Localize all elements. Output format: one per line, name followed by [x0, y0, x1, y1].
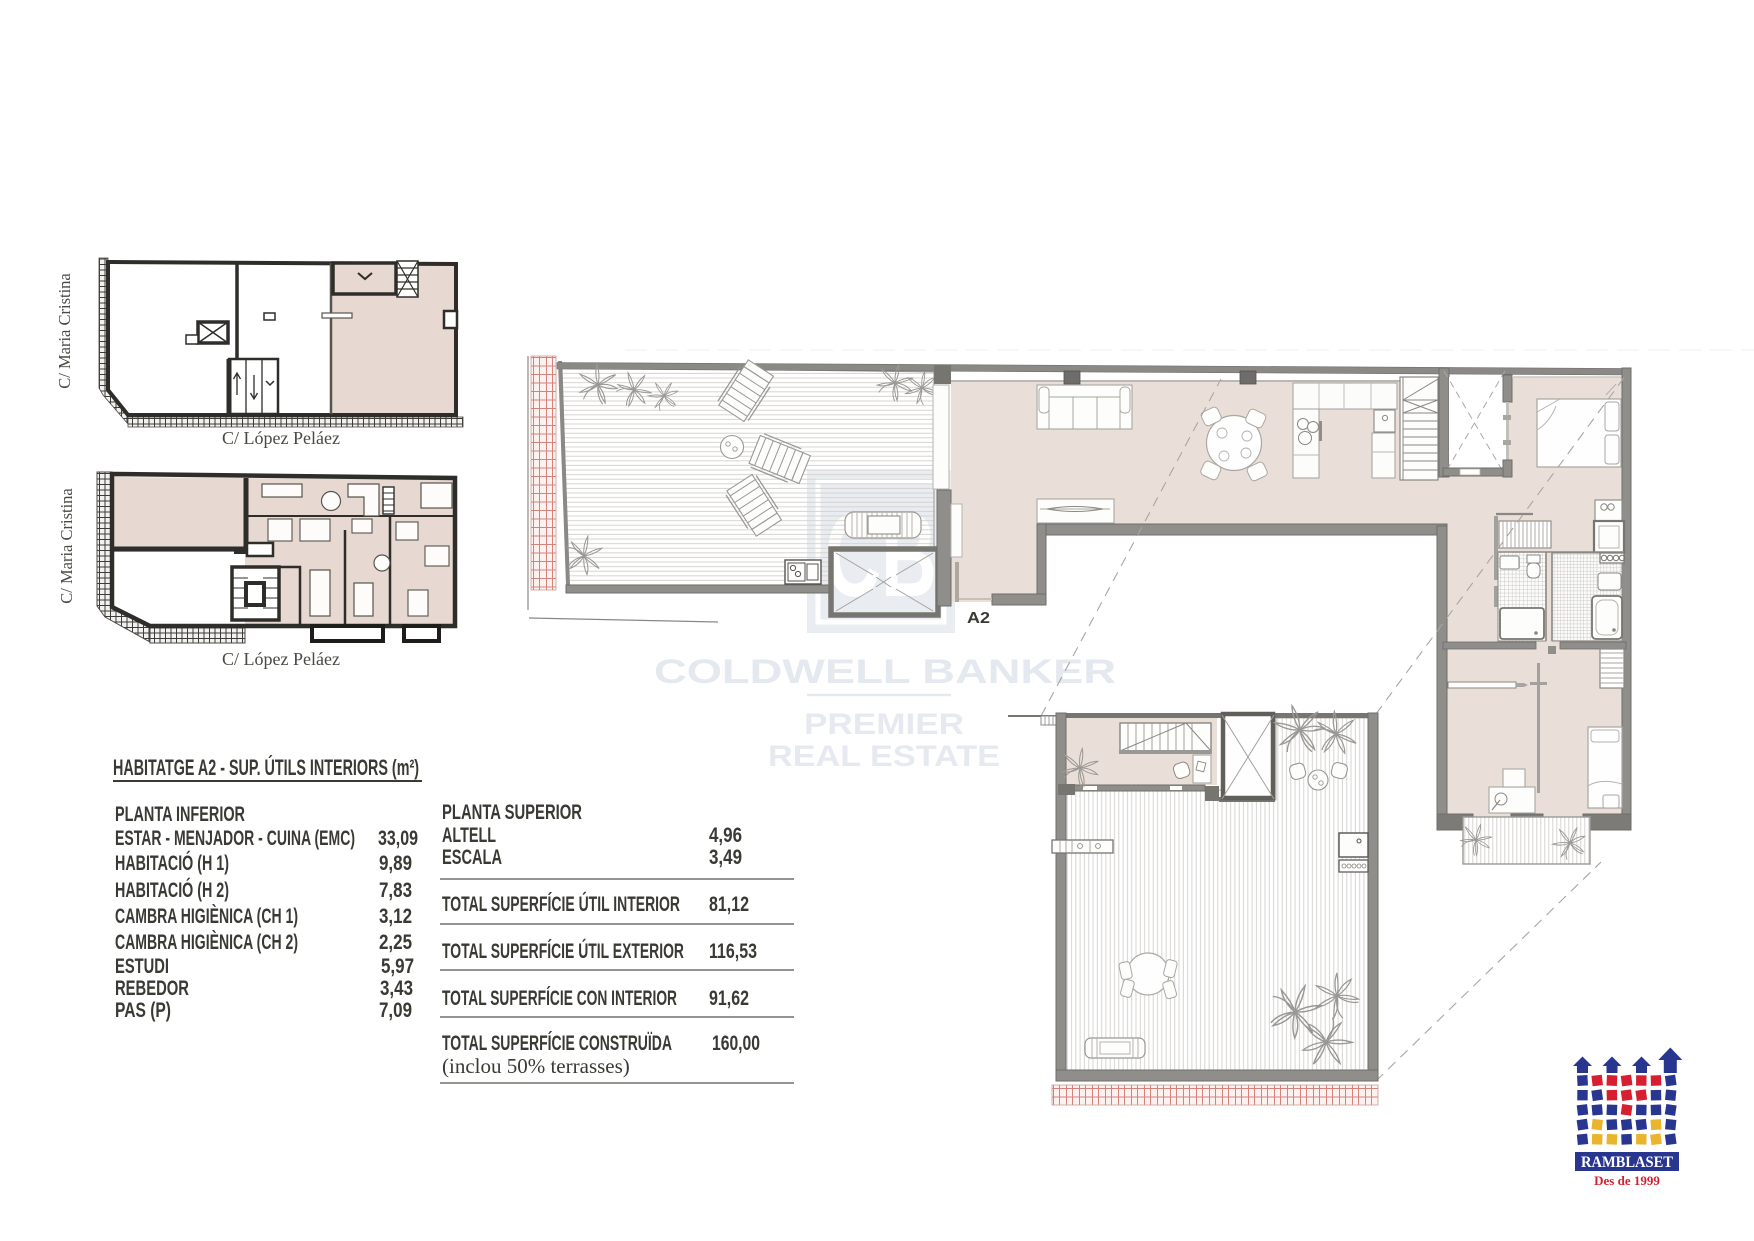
svg-text:COLDWELL BANKER: COLDWELL BANKER: [654, 653, 1116, 691]
svg-text:116,53: 116,53: [709, 940, 757, 963]
svg-text:9,89: 9,89: [379, 852, 412, 875]
svg-text:TOTAL SUPERFÍCIE CONSTRUÏDA: TOTAL SUPERFÍCIE CONSTRUÏDA: [442, 1032, 672, 1055]
svg-text:C/ López Peláez: C/ López Peláez: [222, 428, 340, 448]
svg-text:2,25: 2,25: [379, 931, 412, 954]
svg-text:ESTAR - MENJADOR - CUINA (EMC): ESTAR - MENJADOR - CUINA (EMC): [115, 827, 355, 850]
svg-text:CAMBRA HIGIÈNICA (CH 2): CAMBRA HIGIÈNICA (CH 2): [115, 931, 298, 954]
svg-text:ALTELL: ALTELL: [442, 824, 496, 847]
svg-text:ESCALA: ESCALA: [442, 846, 502, 869]
svg-text:RAMBLASET: RAMBLASET: [1581, 1154, 1673, 1171]
svg-text:REBEDOR: REBEDOR: [115, 977, 189, 1000]
svg-text:PREMIER: PREMIER: [804, 708, 964, 741]
svg-text:33,09: 33,09: [378, 827, 418, 850]
svg-text:TOTAL SUPERFÍCIE ÚTIL INTERIOR: TOTAL SUPERFÍCIE ÚTIL INTERIOR: [442, 892, 680, 916]
svg-text:PAS (P): PAS (P): [115, 999, 171, 1022]
svg-text:3,43: 3,43: [380, 977, 413, 1000]
svg-text:ESTUDI: ESTUDI: [115, 955, 169, 978]
svg-text:TOTAL SUPERFÍCIE ÚTIL EXTERIOR: TOTAL SUPERFÍCIE ÚTIL EXTERIOR: [442, 939, 684, 963]
svg-text:(inclou 50% terrasses): (inclou 50% terrasses): [442, 1054, 630, 1078]
svg-text:3,49: 3,49: [709, 846, 742, 869]
svg-text:HABITACIÓ (H 1): HABITACIÓ (H 1): [115, 851, 229, 875]
svg-text:C/ López Peláez: C/ López Peláez: [222, 649, 340, 669]
svg-text:C/ Maria Cristina: C/ Maria Cristina: [55, 273, 74, 389]
svg-text:7,83: 7,83: [379, 879, 412, 902]
svg-text:HABITACIÓ (H 2): HABITACIÓ (H 2): [115, 878, 229, 902]
svg-text:HABITATGE A2 - SUP. ÚTILS INTE: HABITATGE A2 - SUP. ÚTILS INTERIORS (m²): [113, 755, 419, 780]
svg-text:CAMBRA HIGIÈNICA (CH 1): CAMBRA HIGIÈNICA (CH 1): [115, 905, 298, 928]
svg-text:C/ Maria Cristina: C/ Maria Cristina: [57, 488, 76, 604]
svg-text:4,96: 4,96: [709, 824, 742, 847]
svg-text:PLANTA INFERIOR: PLANTA INFERIOR: [115, 803, 245, 826]
svg-text:91,62: 91,62: [709, 987, 749, 1010]
svg-text:160,00: 160,00: [712, 1032, 760, 1055]
svg-text:3,12: 3,12: [379, 905, 412, 928]
svg-text:81,12: 81,12: [709, 893, 749, 916]
svg-text:PLANTA SUPERIOR: PLANTA SUPERIOR: [442, 801, 582, 824]
svg-text:A2: A2: [967, 610, 990, 627]
svg-text:7,09: 7,09: [379, 999, 412, 1022]
svg-text:TOTAL SUPERFÍCIE CON INTERIOR: TOTAL SUPERFÍCIE CON INTERIOR: [442, 987, 677, 1010]
svg-text:REAL ESTATE: REAL ESTATE: [768, 740, 1000, 773]
svg-text:Des de 1999: Des de 1999: [1594, 1173, 1660, 1188]
svg-text:5,97: 5,97: [381, 955, 414, 978]
